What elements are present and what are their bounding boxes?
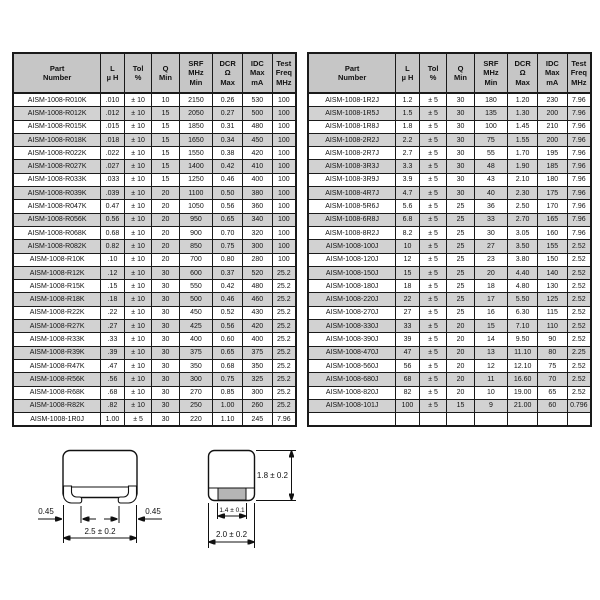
value-cell: 2.7 — [396, 147, 419, 160]
value-cell: ± 10 — [124, 173, 152, 186]
header-row: Part Number L µ H Tol % Q Min SRF MHz Mi… — [13, 53, 296, 93]
col-header-srf: SRF MHz Min — [179, 53, 213, 93]
value-cell: 7.96 — [567, 187, 591, 200]
table-row: AISM-1008-R39K.39± 10303750.6537525.2 — [13, 346, 296, 359]
value-cell: 0.47 — [101, 200, 124, 213]
value-cell: 48 — [474, 160, 508, 173]
value-cell: 23 — [474, 253, 508, 266]
value-cell: .47 — [101, 359, 124, 372]
value-cell: ± 10 — [124, 120, 152, 133]
value-cell: 20 — [152, 226, 179, 239]
value-cell: 100 — [272, 160, 296, 173]
table-row: AISM-1008-270J27± 525166.301152.52 — [308, 306, 591, 319]
value-cell: .82 — [101, 399, 124, 412]
value-cell: .022 — [101, 147, 124, 160]
value-cell: 1050 — [179, 200, 213, 213]
value-cell: 100 — [272, 120, 296, 133]
value-cell: 5.50 — [508, 293, 538, 306]
col-header-tolerance: Tol % — [124, 53, 152, 93]
table-row: AISM-1008-3R3J3.3± 530481.901857.96 — [308, 160, 591, 173]
value-cell: 1650 — [179, 133, 213, 146]
value-cell: 1100 — [179, 187, 213, 200]
value-cell: 420 — [242, 320, 272, 333]
part-number-cell: AISM-1008-R012K — [13, 107, 101, 120]
value-cell: 20 — [474, 266, 508, 279]
col-header-part-number: Part Number — [308, 53, 396, 93]
value-cell: 33 — [474, 213, 508, 226]
part-number-cell: AISM-1008-2R7J — [308, 147, 396, 160]
table-row — [308, 413, 591, 427]
value-cell: 100 — [272, 93, 296, 107]
value-cell: 0.46 — [213, 293, 243, 306]
col-header-q-min: Q Min — [152, 53, 179, 93]
value-cell: 250 — [179, 399, 213, 412]
value-cell: 20 — [152, 200, 179, 213]
part-number-cell: AISM-1008-R12K — [13, 266, 101, 279]
value-cell: 20 — [447, 373, 474, 386]
value-cell: 30 — [152, 346, 179, 359]
part-number-cell: AISM-1008-R015K — [13, 120, 101, 133]
value-cell: 70 — [537, 373, 567, 386]
value-cell: 110 — [537, 320, 567, 333]
value-cell: 75 — [537, 359, 567, 372]
value-cell: 0.38 — [213, 147, 243, 160]
value-cell: 25.2 — [272, 333, 296, 346]
value-cell: 350 — [242, 359, 272, 372]
value-cell: 7.96 — [567, 213, 591, 226]
value-cell: 7.96 — [567, 200, 591, 213]
table-row: AISM-1008-820J82± 5201019.00652.52 — [308, 386, 591, 399]
value-cell: 100 — [272, 147, 296, 160]
value-cell: 100 — [272, 200, 296, 213]
part-number-cell: AISM-1008-8R2J — [308, 226, 396, 239]
value-cell: 30 — [447, 173, 474, 186]
value-cell: 170 — [537, 200, 567, 213]
value-cell: 1.00 — [101, 413, 124, 427]
value-cell: 25 — [447, 213, 474, 226]
value-cell: 950 — [179, 213, 213, 226]
value-cell: 3.9 — [396, 173, 419, 186]
value-cell: 12 — [474, 359, 508, 372]
value-cell: 2.52 — [567, 253, 591, 266]
value-cell: ± 10 — [124, 293, 152, 306]
value-cell — [508, 413, 538, 427]
value-cell: 175 — [537, 187, 567, 200]
value-cell: 550 — [179, 280, 213, 293]
value-cell: ± 10 — [124, 200, 152, 213]
value-cell: ± 5 — [419, 386, 447, 399]
value-cell: 530 — [242, 93, 272, 107]
value-cell: 16.60 — [508, 373, 538, 386]
value-cell: 2.52 — [567, 266, 591, 279]
table-row: AISM-1008-R047K0.47± 102010500.56360100 — [13, 200, 296, 213]
value-cell: 180 — [537, 173, 567, 186]
value-cell: ± 10 — [124, 373, 152, 386]
value-cell: 0.42 — [213, 160, 243, 173]
value-cell: ± 5 — [419, 133, 447, 146]
value-cell: ± 10 — [124, 266, 152, 279]
value-cell: 3.80 — [508, 253, 538, 266]
part-number-cell: AISM-1008-100J — [308, 240, 396, 253]
value-cell: 47 — [396, 346, 419, 359]
value-cell: 260 — [242, 399, 272, 412]
col-header-dcr: DCR Ω Max — [508, 53, 538, 93]
part-number-cell: AISM-1008-R027K — [13, 160, 101, 173]
value-cell: 25.2 — [272, 320, 296, 333]
table-row: AISM-1008-R22K.22± 10304500.5243025.2 — [13, 306, 296, 319]
value-cell: 2.52 — [567, 293, 591, 306]
parts-table-right: Part Number L µ H Tol % Q Min SRF MHz Mi… — [307, 52, 592, 427]
value-cell: 100 — [272, 213, 296, 226]
value-cell: ± 5 — [419, 93, 447, 107]
value-cell: 25 — [447, 266, 474, 279]
table-row: AISM-1008-101J100± 515921.00600.796 — [308, 399, 591, 412]
value-cell: 65 — [537, 386, 567, 399]
value-cell: 160 — [537, 226, 567, 239]
value-cell: 0.75 — [213, 240, 243, 253]
value-cell: 68 — [396, 373, 419, 386]
part-number-cell: AISM-1008-150J — [308, 266, 396, 279]
value-cell: 360 — [242, 200, 272, 213]
value-cell: .39 — [101, 346, 124, 359]
table-row: AISM-1008-1R2J1.2± 5301801.202307.96 — [308, 93, 591, 107]
value-cell: ± 5 — [419, 187, 447, 200]
value-cell: 10 — [474, 386, 508, 399]
value-cell: 375 — [242, 346, 272, 359]
part-number-cell: AISM-1008-120J — [308, 253, 396, 266]
value-cell: 900 — [179, 226, 213, 239]
value-cell: 1.20 — [508, 93, 538, 107]
value-cell: .68 — [101, 386, 124, 399]
value-cell: 39 — [396, 333, 419, 346]
table-row: AISM-1008-R27K.27± 10304250.5642025.2 — [13, 320, 296, 333]
value-cell: 15 — [474, 320, 508, 333]
value-cell: 0.65 — [213, 213, 243, 226]
part-number-cell: AISM-1008-2R2J — [308, 133, 396, 146]
value-cell: 100 — [272, 187, 296, 200]
value-cell: 25.2 — [272, 386, 296, 399]
value-cell: 2.2 — [396, 133, 419, 146]
value-cell: ± 10 — [124, 226, 152, 239]
value-cell: 36 — [474, 200, 508, 213]
table-row: AISM-1008-R68K.68± 10302700.8530025.2 — [13, 386, 296, 399]
value-cell: 1.90 — [508, 160, 538, 173]
value-cell: ± 5 — [419, 280, 447, 293]
value-cell: 350 — [179, 359, 213, 372]
part-number-cell: AISM-1008-R22K — [13, 306, 101, 319]
table-row: AISM-1008-470J47± 5201311.10802.25 — [308, 346, 591, 359]
part-number-cell: AISM-1008-680J — [308, 373, 396, 386]
value-cell: 0.65 — [213, 346, 243, 359]
value-cell: ± 10 — [124, 147, 152, 160]
value-cell: .15 — [101, 280, 124, 293]
value-cell: 30 — [152, 359, 179, 372]
value-cell: 1.2 — [396, 93, 419, 107]
value-cell: 43 — [474, 173, 508, 186]
table-row: AISM-1008-390J39± 520149.50902.52 — [308, 333, 591, 346]
table-row: AISM-1008-1R8J1.8± 5301001.452107.96 — [308, 120, 591, 133]
value-cell: 0.37 — [213, 266, 243, 279]
part-number-cell: AISM-1008-1R2J — [308, 93, 396, 107]
value-cell: ± 10 — [124, 133, 152, 146]
value-cell: 30 — [447, 160, 474, 173]
value-cell: 2.50 — [508, 200, 538, 213]
value-cell: .012 — [101, 107, 124, 120]
value-cell: 2.52 — [567, 280, 591, 293]
value-cell: ± 5 — [419, 373, 447, 386]
part-number-cell: AISM-1008-560J — [308, 359, 396, 372]
value-cell: 20 — [152, 213, 179, 226]
col-header-tolerance: Tol % — [419, 53, 447, 93]
value-cell: 25.2 — [272, 359, 296, 372]
value-cell: 5.6 — [396, 200, 419, 213]
value-cell: 300 — [242, 240, 272, 253]
side-view-drawing: 1.8 ± 0.2 1.4 ± 0.1 2.0 ± 0.2 — [209, 451, 297, 549]
value-cell: 2050 — [179, 107, 213, 120]
value-cell: 82 — [396, 386, 419, 399]
table-row: AISM-1008-R068K0.68± 10209000.70320100 — [13, 226, 296, 239]
value-cell: 7.96 — [567, 93, 591, 107]
part-number-cell: AISM-1008-1R8J — [308, 120, 396, 133]
value-cell: ± 10 — [124, 107, 152, 120]
value-cell: 7.96 — [567, 107, 591, 120]
body-width-label: 2.5 ± 0.2 — [84, 527, 116, 536]
table-row: AISM-1008-R033K.033± 101512500.46400100 — [13, 173, 296, 186]
value-cell: 1550 — [179, 147, 213, 160]
value-cell: 20 — [447, 333, 474, 346]
table-row: AISM-1008-180J18± 525184.801302.52 — [308, 280, 591, 293]
value-cell: 9.50 — [508, 333, 538, 346]
value-cell: 0.42 — [213, 280, 243, 293]
part-number-cell: AISM-1008-5R6J — [308, 200, 396, 213]
value-cell: 500 — [242, 107, 272, 120]
value-cell: 400 — [179, 333, 213, 346]
value-cell: .033 — [101, 173, 124, 186]
value-cell: 9 — [474, 399, 508, 412]
value-cell: 25 — [447, 226, 474, 239]
part-number-cell: AISM-1008-R022K — [13, 147, 101, 160]
value-cell — [567, 413, 591, 427]
value-cell: 0.70 — [213, 226, 243, 239]
table-row: AISM-1008-R33K.33± 10304000.6040025.2 — [13, 333, 296, 346]
value-cell: 20 — [152, 253, 179, 266]
value-cell: 90 — [537, 333, 567, 346]
table-row: AISM-1008-R018K.018± 101516500.34450100 — [13, 133, 296, 146]
value-cell: 3.3 — [396, 160, 419, 173]
value-cell: 0.85 — [213, 386, 243, 399]
table-row: AISM-1008-6R8J6.8± 525332.701657.96 — [308, 213, 591, 226]
part-number-cell: AISM-1008-R068K — [13, 226, 101, 239]
value-cell: 340 — [242, 213, 272, 226]
value-cell: 410 — [242, 160, 272, 173]
front-view-drawing: 0.45 0.45 2.5 ± 0.2 — [38, 451, 162, 544]
value-cell: 0.82 — [101, 240, 124, 253]
value-cell: ± 5 — [419, 173, 447, 186]
value-cell: 30 — [152, 386, 179, 399]
part-number-cell: AISM-1008-180J — [308, 280, 396, 293]
value-cell: 140 — [537, 266, 567, 279]
value-cell: 16 — [474, 306, 508, 319]
value-cell: ± 10 — [124, 213, 152, 226]
header-row: Part Number L µ H Tol % Q Min SRF MHz Mi… — [308, 53, 591, 93]
value-cell: ± 10 — [124, 240, 152, 253]
value-cell: 200 — [537, 133, 567, 146]
value-cell: 300 — [179, 373, 213, 386]
value-cell: 0.56 — [213, 200, 243, 213]
value-cell: 18 — [474, 280, 508, 293]
value-cell: 1250 — [179, 173, 213, 186]
part-number-cell: AISM-1008-R033K — [13, 173, 101, 186]
value-cell: 15 — [152, 120, 179, 133]
value-cell: 2.52 — [567, 386, 591, 399]
value-cell: 2.52 — [567, 240, 591, 253]
value-cell: 155 — [537, 240, 567, 253]
value-cell: 135 — [474, 107, 508, 120]
value-cell: ± 5 — [419, 200, 447, 213]
table-row: AISM-1008-2R7J2.7± 530551.701957.96 — [308, 147, 591, 160]
value-cell: 25.2 — [272, 280, 296, 293]
value-cell: 0.796 — [567, 399, 591, 412]
value-cell: 245 — [242, 413, 272, 427]
part-number-cell: AISM-1008-270J — [308, 306, 396, 319]
value-cell: 850 — [179, 240, 213, 253]
part-number-cell: AISM-1008-3R3J — [308, 160, 396, 173]
value-cell: 25.2 — [272, 399, 296, 412]
value-cell: 7.96 — [567, 147, 591, 160]
value-cell: 30 — [152, 293, 179, 306]
value-cell: ± 10 — [124, 306, 152, 319]
table-row: AISM-1008-1R5J1.5± 5301351.302007.96 — [308, 107, 591, 120]
value-cell — [419, 413, 447, 427]
value-cell: 55 — [474, 147, 508, 160]
value-cell: 220 — [179, 413, 213, 427]
part-number-cell: AISM-1008-R56K — [13, 373, 101, 386]
value-cell: 100 — [272, 226, 296, 239]
value-cell: 210 — [537, 120, 567, 133]
value-cell: 100 — [474, 120, 508, 133]
table-body-left: AISM-1008-R010K.010± 101021500.26530100A… — [13, 93, 296, 426]
value-cell: 21.00 — [508, 399, 538, 412]
value-cell: 30 — [152, 266, 179, 279]
table-row: AISM-1008-R027K.027± 101514000.42410100 — [13, 160, 296, 173]
value-cell: 15 — [396, 266, 419, 279]
value-cell: 2.25 — [567, 346, 591, 359]
value-cell: 30 — [447, 120, 474, 133]
value-cell: 1.70 — [508, 147, 538, 160]
value-cell: 230 — [537, 93, 567, 107]
value-cell: 13 — [474, 346, 508, 359]
value-cell: ± 5 — [419, 213, 447, 226]
value-cell: ± 10 — [124, 160, 152, 173]
value-cell: 0.46 — [213, 173, 243, 186]
value-cell: 1.45 — [508, 120, 538, 133]
table-body-right: AISM-1008-1R2J1.2± 5301801.202307.96AISM… — [308, 93, 591, 426]
value-cell: ± 5 — [419, 333, 447, 346]
value-cell: 165 — [537, 213, 567, 226]
value-cell: 20 — [447, 320, 474, 333]
value-cell: 30 — [152, 373, 179, 386]
value-cell: ± 5 — [419, 120, 447, 133]
value-cell: 3.05 — [508, 226, 538, 239]
value-cell: 430 — [242, 306, 272, 319]
value-cell: 100 — [272, 107, 296, 120]
value-cell: 20 — [152, 187, 179, 200]
value-cell: 6.30 — [508, 306, 538, 319]
part-number-cell: AISM-1008-470J — [308, 346, 396, 359]
value-cell: .33 — [101, 333, 124, 346]
value-cell: 30 — [474, 226, 508, 239]
col-header-idc: IDC Max mA — [242, 53, 272, 93]
table-row: AISM-1008-R056K0.56± 10209500.65340100 — [13, 213, 296, 226]
value-cell: 30 — [447, 133, 474, 146]
value-cell: 100 — [272, 253, 296, 266]
part-number-cell: AISM-1008-R018K — [13, 133, 101, 146]
value-cell: 75 — [474, 133, 508, 146]
value-cell: 450 — [179, 306, 213, 319]
value-cell: 2.30 — [508, 187, 538, 200]
value-cell: 15 — [152, 160, 179, 173]
col-header-dcr: DCR Ω Max — [213, 53, 243, 93]
value-cell: .22 — [101, 306, 124, 319]
value-cell: ± 5 — [419, 147, 447, 160]
value-cell: ± 5 — [419, 160, 447, 173]
col-header-idc: IDC Max mA — [537, 53, 567, 93]
value-cell: .015 — [101, 120, 124, 133]
value-cell: 60 — [537, 399, 567, 412]
value-cell: 25.2 — [272, 346, 296, 359]
value-cell: 1400 — [179, 160, 213, 173]
value-cell: 2.52 — [567, 359, 591, 372]
component-body-front — [63, 451, 137, 498]
table-row: AISM-1008-R82K.82± 10302501.0026025.2 — [13, 399, 296, 412]
table-row: AISM-1008-5R6J5.6± 525362.501707.96 — [308, 200, 591, 213]
value-cell: 30 — [447, 147, 474, 160]
value-cell: .039 — [101, 187, 124, 200]
value-cell: 450 — [242, 133, 272, 146]
value-cell: 185 — [537, 160, 567, 173]
value-cell: 100 — [396, 399, 419, 412]
value-cell: 130 — [537, 280, 567, 293]
value-cell: 0.27 — [213, 107, 243, 120]
value-cell: ± 5 — [124, 413, 152, 427]
value-cell: ± 5 — [419, 320, 447, 333]
value-cell: 25 — [447, 280, 474, 293]
value-cell: 0.60 — [213, 333, 243, 346]
value-cell: 0.56 — [213, 320, 243, 333]
table-row: AISM-1008-R012K.012± 101520500.27500100 — [13, 107, 296, 120]
value-cell: 2.52 — [567, 320, 591, 333]
table-row: AISM-1008-R039K.039± 102011000.50380100 — [13, 187, 296, 200]
body-height-label: 1.8 ± 0.2 — [257, 471, 289, 480]
value-cell — [537, 413, 567, 427]
value-cell: 15 — [447, 399, 474, 412]
part-number-cell: AISM-1008-390J — [308, 333, 396, 346]
part-number-cell: AISM-1008-R33K — [13, 333, 101, 346]
value-cell: ± 10 — [124, 253, 152, 266]
value-cell: 4.80 — [508, 280, 538, 293]
value-cell: 14 — [474, 333, 508, 346]
value-cell: 7.96 — [272, 413, 296, 427]
part-number-cell: AISM-1008-6R8J — [308, 213, 396, 226]
value-cell: 420 — [242, 147, 272, 160]
lead-width-label-right: 0.45 — [145, 507, 161, 516]
value-cell: 30 — [152, 280, 179, 293]
value-cell: 30 — [152, 306, 179, 319]
value-cell: ± 5 — [419, 346, 447, 359]
table-row: AISM-1008-560J56± 5201212.10752.52 — [308, 359, 591, 372]
value-cell: 12 — [396, 253, 419, 266]
value-cell: 400 — [242, 173, 272, 186]
